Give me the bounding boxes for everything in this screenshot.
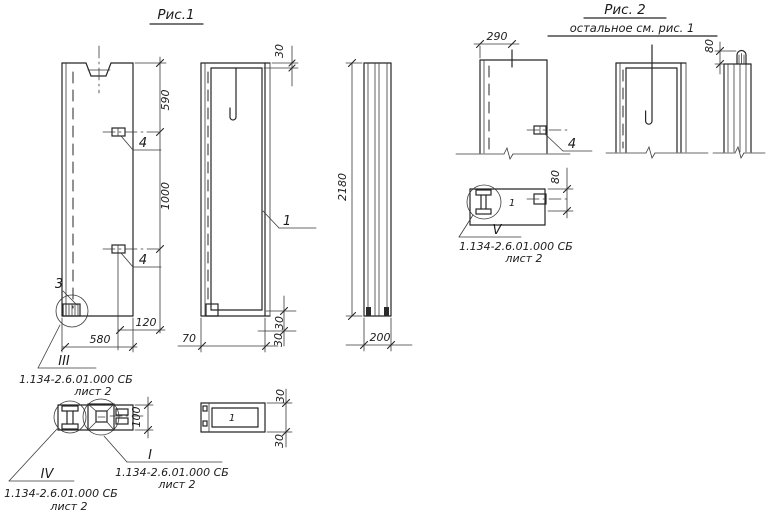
fig2-side-view: 80 xyxy=(703,39,765,158)
fig2-detail-view: 1 80 xyxy=(467,168,573,225)
panel-mark: 1 xyxy=(509,198,515,209)
ibeam-flange xyxy=(476,190,491,195)
dim-590: 590 xyxy=(159,90,172,111)
embed-label: 4 xyxy=(139,253,147,268)
detail-numeral: IV xyxy=(41,467,55,482)
dim-580: 580 xyxy=(90,333,111,346)
detail-numeral: III xyxy=(58,354,70,369)
fig1-title: Рис.1 xyxy=(157,7,194,23)
dim-100: 100 xyxy=(130,407,143,428)
fig2-face-view xyxy=(606,45,708,158)
dim-290: 290 xyxy=(487,30,508,43)
anchor-bevel xyxy=(88,422,96,430)
leader-line xyxy=(545,134,563,151)
sheet-reference: лист 2 xyxy=(49,500,87,513)
dim-30: 30 xyxy=(273,434,286,448)
item-label-3: 3 xyxy=(55,277,63,292)
drawing-sheet: Рис.1 4 4 xyxy=(0,0,781,521)
sheet-reference: лист 2 xyxy=(504,252,542,265)
detail-numeral: I xyxy=(148,448,152,463)
embed-label: 4 xyxy=(568,137,576,152)
hatched-embed xyxy=(63,304,80,316)
technical-drawing: Рис.1 4 4 xyxy=(0,0,781,521)
fig2-subtitle: остальное см. рис. 1 xyxy=(570,21,695,35)
lifting-loop xyxy=(230,68,236,120)
dim-80: 80 xyxy=(549,170,562,184)
dim-2180: 2180 xyxy=(336,173,349,201)
end-notch xyxy=(203,421,207,426)
fig2-title: Рис. 2 xyxy=(604,2,646,18)
dim-120: 120 xyxy=(136,316,157,329)
lifting-notch xyxy=(86,63,111,76)
dim-80: 80 xyxy=(703,39,716,53)
anchor-bevel xyxy=(107,422,114,430)
fig1-face-view: 1 30 30 30 70 xyxy=(178,44,316,352)
leader-line xyxy=(459,215,473,237)
detail-numeral: V xyxy=(493,223,503,238)
ibeam-flange xyxy=(62,406,78,411)
dim-200: 200 xyxy=(370,331,391,344)
fig1-callout-I: I 1.134-2.6.01.000 СБ лист 2 xyxy=(104,436,229,491)
panel-mark: 1 xyxy=(283,214,291,229)
fig1-end-view: 100 xyxy=(54,397,153,438)
dim-1000: 1000 xyxy=(159,182,172,210)
break-mark xyxy=(735,147,744,158)
fig1-plan-view: 1 30 30 xyxy=(201,389,292,448)
ibeam-flange xyxy=(62,424,78,429)
leader-line xyxy=(63,291,77,305)
dim-70: 70 xyxy=(182,332,196,345)
fig1-front-view: 4 4 590 1000 3 xyxy=(55,46,172,352)
leader-line xyxy=(104,436,127,462)
fig1-callout-IV: IV 1.134-2.6.01.000 СБ лист 2 xyxy=(4,429,118,513)
dim-30: 30 xyxy=(272,333,285,347)
dim-30: 30 xyxy=(273,44,286,58)
fig2: Рис. 2 остальное см. рис. 1 290 4 xyxy=(456,2,765,265)
base-block xyxy=(384,307,389,316)
base-block xyxy=(366,307,371,316)
fig1-callout-III: III 1.134-2.6.01.000 СБ лист 2 xyxy=(19,325,133,398)
fig2-callout-V: V 1.134-2.6.01.000 СБ лист 2 xyxy=(459,215,573,265)
dim-30: 30 xyxy=(273,316,286,330)
lifting-loop xyxy=(646,45,652,124)
dim-30: 30 xyxy=(274,389,287,403)
sheet-reference: лист 2 xyxy=(73,385,111,398)
sheet-reference: лист 2 xyxy=(157,478,195,491)
doc-reference: 1.134-2.6.01.000 СБ xyxy=(4,487,118,500)
anchor-block-core xyxy=(96,411,107,422)
fig1: Рис.1 4 4 xyxy=(4,7,412,513)
ibeam-flange xyxy=(476,209,491,214)
fig1-side-view: 2180 200 xyxy=(336,60,412,352)
embed-label: 4 xyxy=(139,136,147,151)
fig2-front-view: 290 4 xyxy=(456,30,592,159)
break-mark xyxy=(504,148,513,159)
leader-line xyxy=(38,325,60,368)
end-notch xyxy=(203,406,207,411)
panel-mark: 1 xyxy=(229,413,235,424)
break-mark xyxy=(646,147,655,158)
